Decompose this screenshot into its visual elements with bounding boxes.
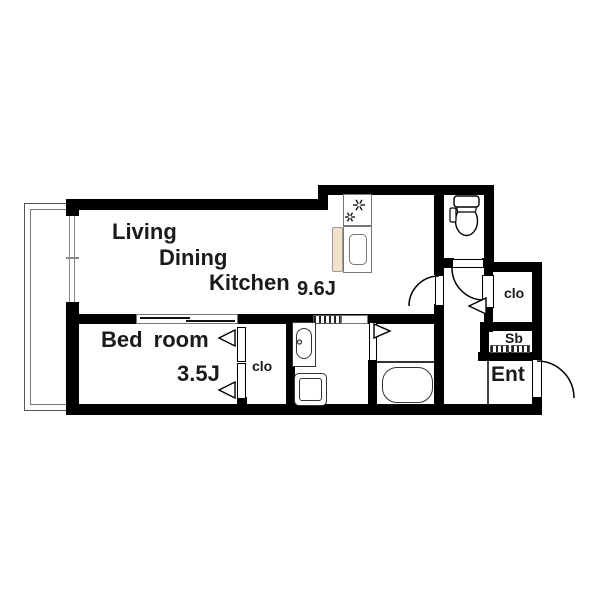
entrance-label: Ent (491, 363, 525, 387)
floor-plan: Living Dining Kitchen 9.6J Bed room 3.5J… (0, 0, 600, 600)
stove-burner-icon (345, 200, 365, 222)
ldk-size-label: 9.6J (297, 278, 336, 301)
faucet-icon (298, 340, 302, 344)
door-arc-toilet (452, 268, 484, 300)
door-triangle-hall-closet (469, 298, 486, 314)
bedroom-closet-label: clo (252, 358, 272, 374)
hall-closet-label: clo (504, 285, 524, 301)
door-triangle-bathroom (374, 324, 390, 338)
door-triangle-bedroom-closet (219, 330, 235, 346)
door-arc-entrance (537, 361, 574, 398)
shoe-box-label: Sb (505, 330, 523, 346)
toilet-icon (450, 196, 479, 236)
bedroom-label: Bed room (101, 327, 209, 353)
ldk-label-living: Living (112, 219, 177, 245)
door-arc-ldk-hall (409, 276, 439, 306)
ldk-label-kitchen: Kitchen (209, 270, 290, 296)
bedroom-size-label: 3.5J (177, 361, 220, 387)
door-triangle-bedroom-closet (219, 382, 235, 398)
ldk-label-dining: Dining (159, 245, 227, 271)
